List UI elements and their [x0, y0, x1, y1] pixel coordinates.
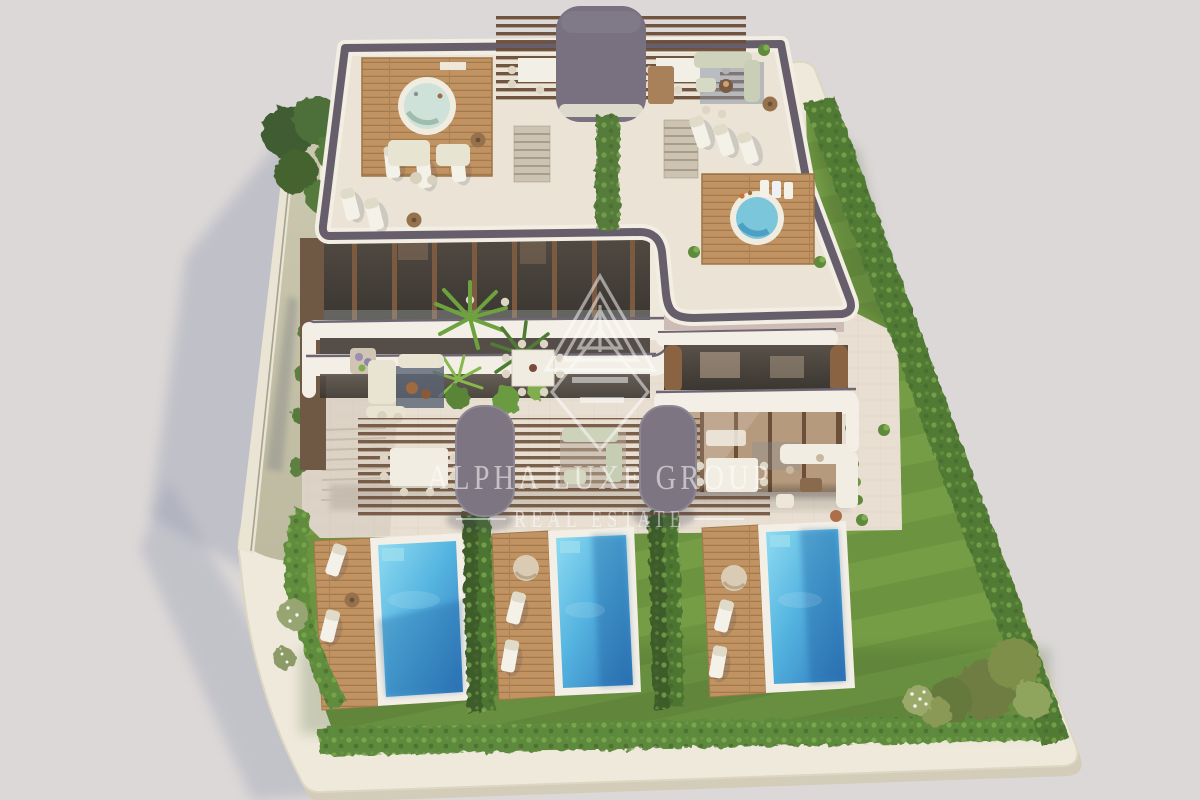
villa-aerial-render: ALPHA LUXE GROUP REAL ESTATE	[0, 0, 1200, 800]
render-canvas: ALPHA LUXE GROUP REAL ESTATE	[0, 0, 1200, 800]
pool-1	[370, 533, 472, 706]
roof-deck-jacuzzi-2	[688, 174, 826, 268]
watermark-title: ALPHA LUXE GROUP	[428, 458, 773, 497]
pool-3	[758, 521, 855, 693]
roof-hedge	[596, 114, 620, 230]
watermark-subtitle: REAL ESTATE	[514, 507, 686, 533]
pool-2	[548, 527, 641, 696]
flower-bush	[903, 685, 933, 715]
